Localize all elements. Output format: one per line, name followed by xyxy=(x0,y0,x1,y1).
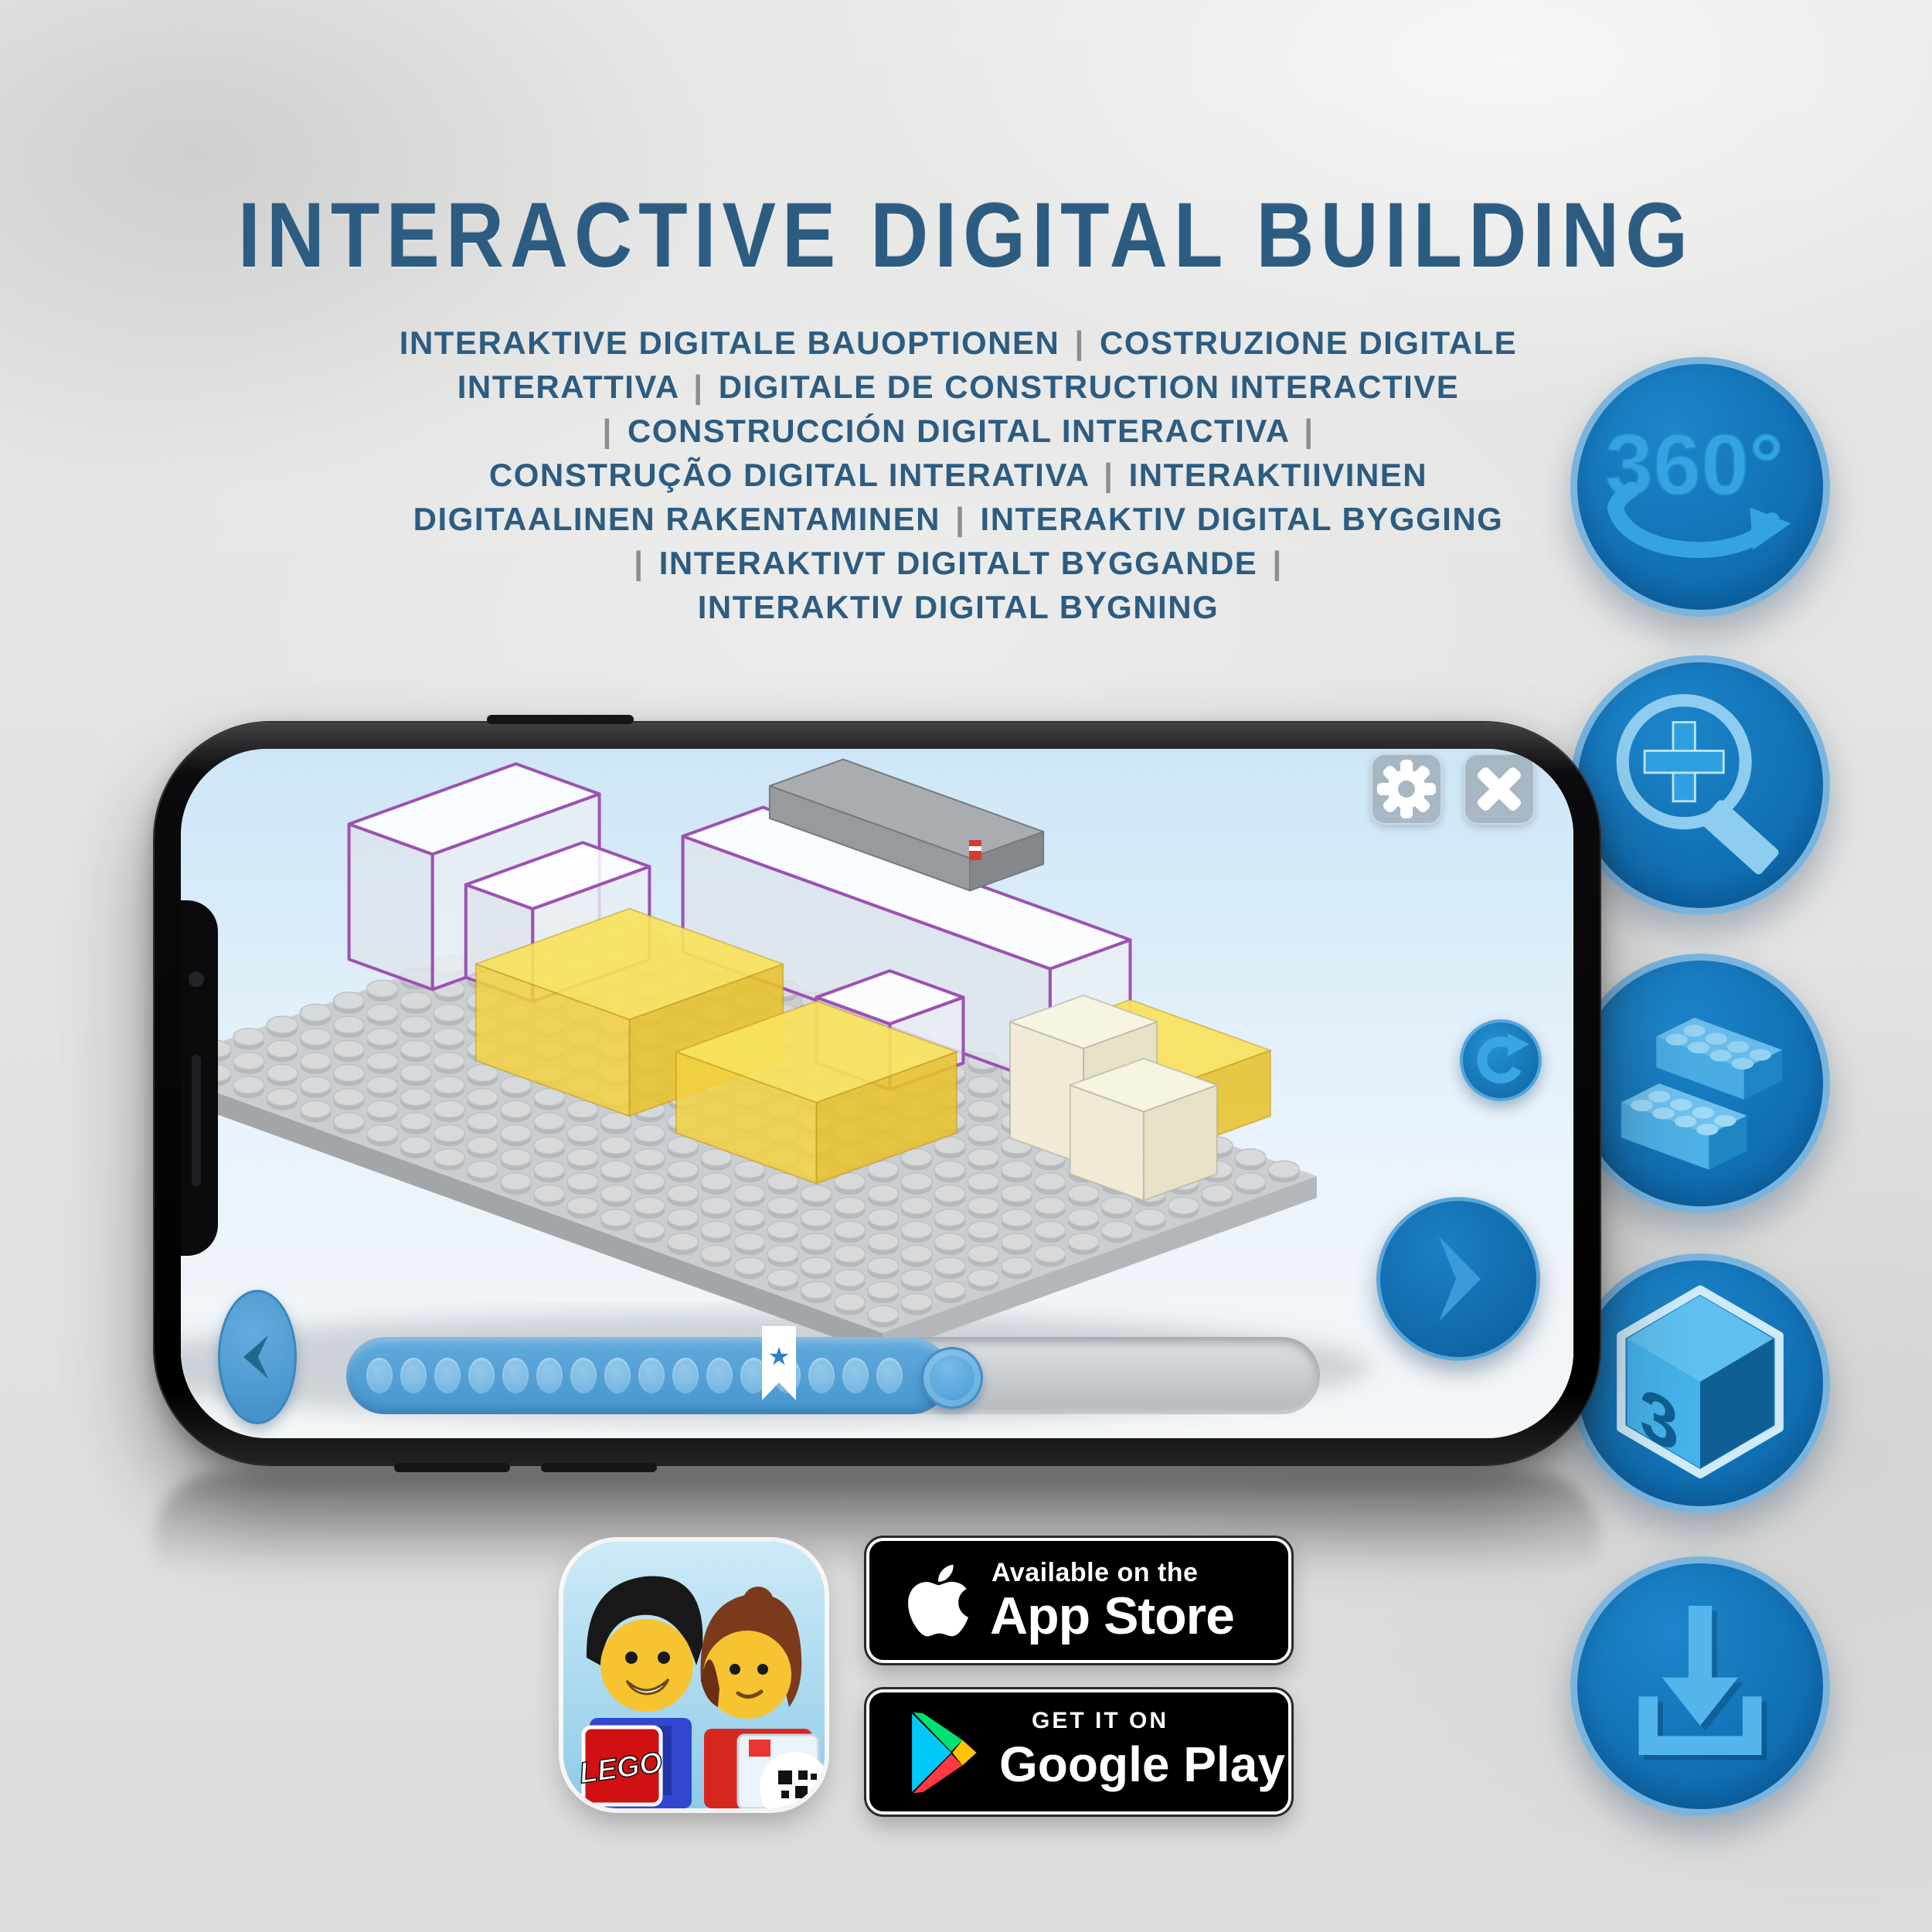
progress-dot xyxy=(672,1358,699,1393)
separator: | xyxy=(951,501,970,537)
subtitle-segment: COSTRUZIONE DIGITALE xyxy=(1090,325,1517,361)
page-background: INTERACTIVE DIGITAL BUILDING INTERAKTIVE… xyxy=(0,0,1932,1932)
download-icon xyxy=(1577,1563,1823,1809)
previous-step-button[interactable] xyxy=(218,1290,297,1424)
google-play-badge[interactable]: GET IT ON Google Play xyxy=(866,1689,1291,1815)
rotate-icon xyxy=(1463,1022,1539,1098)
settings-button[interactable] xyxy=(1371,753,1442,825)
progress-dot xyxy=(808,1358,835,1393)
separator: | xyxy=(1099,457,1118,493)
subtitle-segment: INTERAKTIV DIGITAL BYGNING xyxy=(698,589,1219,625)
progress-dot xyxy=(400,1358,427,1393)
lego-3d-model-view xyxy=(181,749,1573,1438)
subtitle-segment: INTERAKTIVE DIGITALE BAUOPTIONEN xyxy=(400,325,1070,361)
subtitle-line: | CONSTRUCCIÓN DIGITAL INTERACTIVA | xyxy=(185,409,1731,453)
subtitle-segment: INTERAKTIV DIGITAL BYGGING xyxy=(970,501,1503,537)
subtitle-line: | INTERAKTIVT DIGITALT BYGGANDE | xyxy=(185,541,1731,585)
phone: ★ xyxy=(155,723,1600,1464)
phone-power-button xyxy=(487,715,634,724)
feature-download-badge xyxy=(1570,1556,1830,1816)
chevron-right-icon xyxy=(1380,1201,1536,1357)
subtitle-segment: CONSTRUÇÃO DIGITAL INTERATIVA xyxy=(489,457,1099,493)
subtitle-segment: DIGITALE DE CONSTRUCTION INTERACTIVE xyxy=(709,369,1460,405)
progress-dot xyxy=(638,1358,665,1393)
rotate-model-button[interactable] xyxy=(1460,1019,1542,1101)
close-button[interactable] xyxy=(1464,753,1535,825)
gear-icon xyxy=(1372,755,1440,823)
progress-dot xyxy=(502,1358,529,1393)
separator: | xyxy=(1299,413,1318,449)
progress-dot xyxy=(570,1358,597,1393)
close-icon xyxy=(1465,755,1533,823)
feature-bricks-badge xyxy=(1570,954,1830,1213)
app-store-name: App Store xyxy=(990,1586,1234,1646)
chevron-left-icon xyxy=(220,1292,294,1422)
subtitle-segment: INTERATTIVA xyxy=(457,369,689,405)
subtitle-line: INTERAKTIV DIGITAL BYGNING xyxy=(185,585,1731,629)
phone-volume-up-button xyxy=(394,1463,510,1472)
progress-handle[interactable] xyxy=(921,1347,983,1409)
bookmark-star-icon: ★ xyxy=(768,1342,791,1371)
rotate-360-icon: 360° xyxy=(1577,364,1823,610)
separator: | xyxy=(1267,545,1287,581)
build-progress-slider[interactable]: ★ xyxy=(346,1337,1320,1414)
subtitle-line: INTERAKTIVE DIGITALE BAUOPTIONEN | COSTR… xyxy=(185,321,1731,365)
phone-notch xyxy=(181,900,218,1256)
separator: | xyxy=(598,413,617,449)
google-play-name: Google Play xyxy=(999,1736,1285,1793)
feature-3d-badge: 3 D xyxy=(1570,1253,1830,1513)
phone-screen: ★ xyxy=(181,749,1573,1438)
feature-360-badge: 360° xyxy=(1570,357,1830,617)
zoom-in-icon xyxy=(1577,662,1823,908)
subtitle-line: CONSTRUÇÃO DIGITAL INTERATIVA | INTERAKT… xyxy=(185,453,1731,497)
subtitle-segment: DIGITAALINEN RAKENTAMINEN xyxy=(413,501,951,537)
subtitle-segment: INTERAKTIVT DIGITALT BYGGANDE xyxy=(649,545,1268,581)
apple-icon xyxy=(903,1560,973,1641)
subtitle: INTERAKTIVE DIGITALE BAUOPTIONEN | COSTR… xyxy=(185,321,1731,629)
lego-app-icon: LEGO xyxy=(563,1542,825,1808)
google-play-tagline: GET IT ON xyxy=(1032,1708,1168,1734)
progress-dot xyxy=(604,1358,631,1393)
separator: | xyxy=(629,545,648,581)
app-store-tagline: Available on the xyxy=(992,1558,1198,1588)
progress-dot xyxy=(876,1358,903,1393)
progress-steps xyxy=(366,1337,903,1414)
progress-filled-track xyxy=(346,1337,950,1414)
progress-dot xyxy=(366,1358,393,1393)
subtitle-line: DIGITAALINEN RAKENTAMINEN | INTERAKTIV D… xyxy=(185,497,1731,541)
progress-dot xyxy=(434,1358,461,1393)
separator: | xyxy=(1070,325,1090,361)
page-title: INTERACTIVE DIGITAL BUILDING xyxy=(0,184,1932,289)
lego-app-artwork: LEGO xyxy=(563,1542,825,1808)
subtitle-segment: CONSTRUCCIÓN DIGITAL INTERACTIVA xyxy=(617,413,1299,449)
phone-volume-down-button xyxy=(541,1463,657,1472)
subtitle-segment: INTERAKTIIVINEN xyxy=(1118,457,1427,493)
app-store-badge[interactable]: Available on the App Store xyxy=(866,1538,1291,1663)
next-step-button[interactable] xyxy=(1376,1197,1540,1361)
feature-zoom-badge xyxy=(1570,655,1830,915)
lego-bricks-icon xyxy=(1577,961,1823,1206)
progress-dot xyxy=(468,1358,495,1393)
progress-dot xyxy=(536,1358,563,1393)
google-play-icon xyxy=(903,1711,984,1794)
3d-view-icon: 3 D xyxy=(1577,1260,1823,1506)
progress-dot xyxy=(842,1358,869,1393)
subtitle-line: INTERATTIVA | DIGITALE DE CONSTRUCTION I… xyxy=(185,365,1731,409)
separator: | xyxy=(689,369,708,405)
front-camera xyxy=(189,971,204,987)
progress-dot xyxy=(706,1358,733,1393)
speaker-grille xyxy=(192,1055,201,1186)
